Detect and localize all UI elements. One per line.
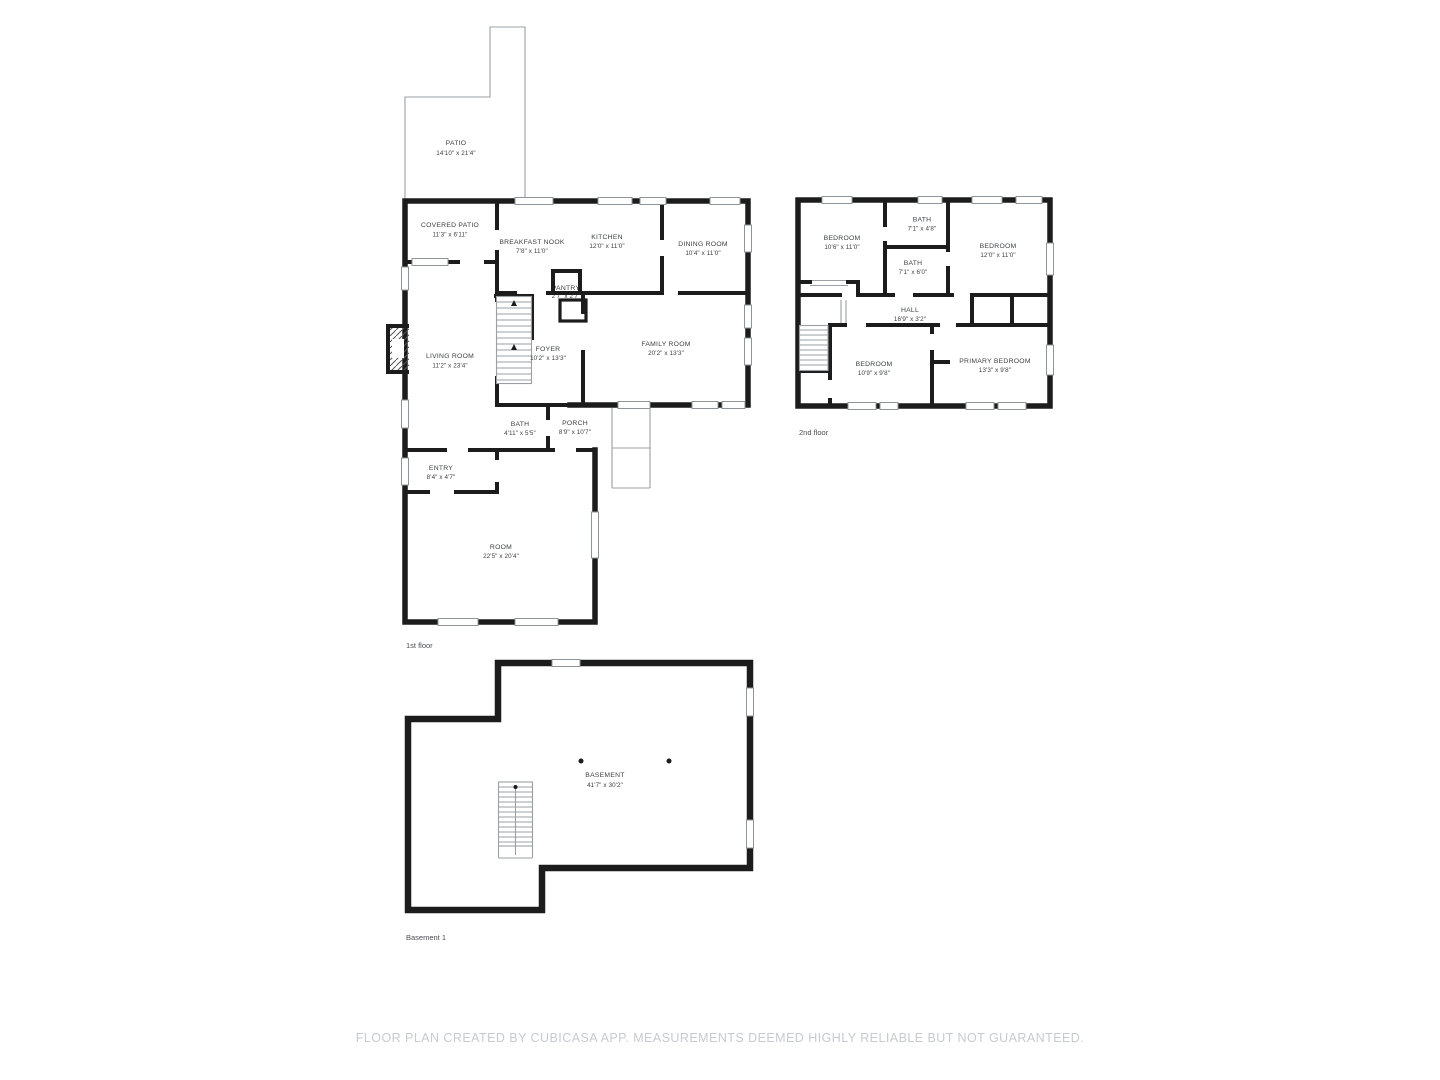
support-columns (579, 759, 672, 764)
stairs-second-floor (800, 326, 829, 371)
room-dims-bedroom-3: 10'9" x 9'8" (858, 370, 890, 377)
floor-plan-page: { "colors": { "wall": "#1c1c1c", "label"… (0, 0, 1440, 1080)
room-label-bedroom-2: BEDROOM (980, 243, 1017, 250)
room-label-kitchen: KITCHEN (591, 234, 623, 241)
room-label-pantry: PANTRY (552, 285, 581, 292)
room-dims-porch: 8'9" x 10'7" (559, 429, 591, 436)
room-dims-bedroom-1: 10'6" x 11'0" (824, 244, 859, 251)
room-label-patio: PATIO (446, 140, 467, 147)
room-label-hall: HALL (901, 307, 919, 314)
room-dims-hall: 16'9" x 3'2" (894, 316, 926, 323)
room-dims-basement: 41'7" x 30'2" (587, 782, 623, 789)
room-dims-entry: 8'4" x 4'7" (427, 474, 456, 481)
room-label-primary-bedroom: PRIMARY BEDROOM (959, 358, 1031, 365)
room-label-living-room: LIVING ROOM (426, 353, 474, 360)
room-label-breakfast-nook: BREAKFAST NOOK (499, 239, 565, 246)
column-dot (579, 759, 584, 764)
first-floor-labels: PATIO 14'10" x 21'4" COVERED PATIO 11'3"… (406, 140, 728, 650)
room-dims-foyer: 10'2" x 13'3" (530, 355, 566, 362)
room-dims-room: 22'5" x 20'4" (483, 553, 519, 560)
room-label-bath-1: BATH (913, 217, 932, 224)
room-dims-covered-patio: 11'3" x 6'11" (433, 232, 468, 239)
room-dims-family-room: 20'2" x 13'3" (648, 350, 684, 357)
room-label-room: ROOM (490, 544, 512, 551)
room-label-porch: PORCH (562, 420, 588, 427)
room-label-foyer: FOYER (536, 346, 561, 353)
room-dims-bath-2: 7'1" x 6'0" (899, 269, 928, 276)
porch-steps-outline (612, 408, 650, 488)
closet-sliding-doors (810, 281, 848, 286)
floor-label-second: 2nd floor (799, 428, 829, 437)
room-label-basement: BASEMENT (585, 772, 624, 779)
room-label-family-room: FAMILY ROOM (641, 341, 690, 348)
floor-label-first: 1st floor (406, 641, 433, 650)
stairs-basement (499, 782, 533, 858)
basement-walls (408, 663, 750, 910)
room-dims-dining-room: 10'4" x 11'0" (685, 250, 720, 257)
room-dims-breakfast-nook: 7'8" x 11'0" (516, 248, 548, 255)
patio-outline (405, 27, 525, 198)
room-dims-patio: 14'10" x 21'4" (436, 150, 475, 157)
room-dims-bath: 4'11" x 5'5" (504, 430, 536, 437)
room-label-bath: BATH (511, 421, 530, 428)
first-floor-exterior-walls (405, 201, 748, 622)
floor-label-basement: Basement 1 (406, 933, 446, 942)
column-dot (667, 759, 672, 764)
stair-railing (841, 300, 846, 323)
room-label-bedroom-3: BEDROOM (856, 361, 893, 368)
fireplace (388, 326, 409, 372)
room-label-entry: ENTRY (429, 465, 453, 472)
room-dims-living-room: 11'2" x 23'4" (432, 363, 467, 370)
stairs-first-floor (497, 297, 532, 384)
thin-outlines (405, 27, 848, 488)
first-floor-walls (405, 201, 748, 622)
room-dims-kitchen: 12'0" x 11'0" (589, 243, 624, 250)
room-label-covered-patio: COVERED PATIO (421, 222, 479, 229)
room-dims-primary-bedroom: 13'3" x 9'8" (979, 367, 1011, 374)
room-dims-bedroom-2: 12'0" x 11'0" (980, 252, 1015, 259)
room-label-bath-2: BATH (904, 260, 923, 267)
room-dims-bath-1: 7'1" x 4'8" (908, 226, 937, 233)
disclaimer-text: FLOOR PLAN CREATED BY CUBICASA APP. MEAS… (0, 1031, 1440, 1045)
room-label-dining-room: DINING ROOM (678, 241, 728, 248)
floor-plan-canvas: PANTRY 2'7" x 2'7" (0, 0, 1440, 1080)
room-label-bedroom-1: BEDROOM (824, 235, 861, 242)
basement-exterior-walls (408, 663, 750, 910)
